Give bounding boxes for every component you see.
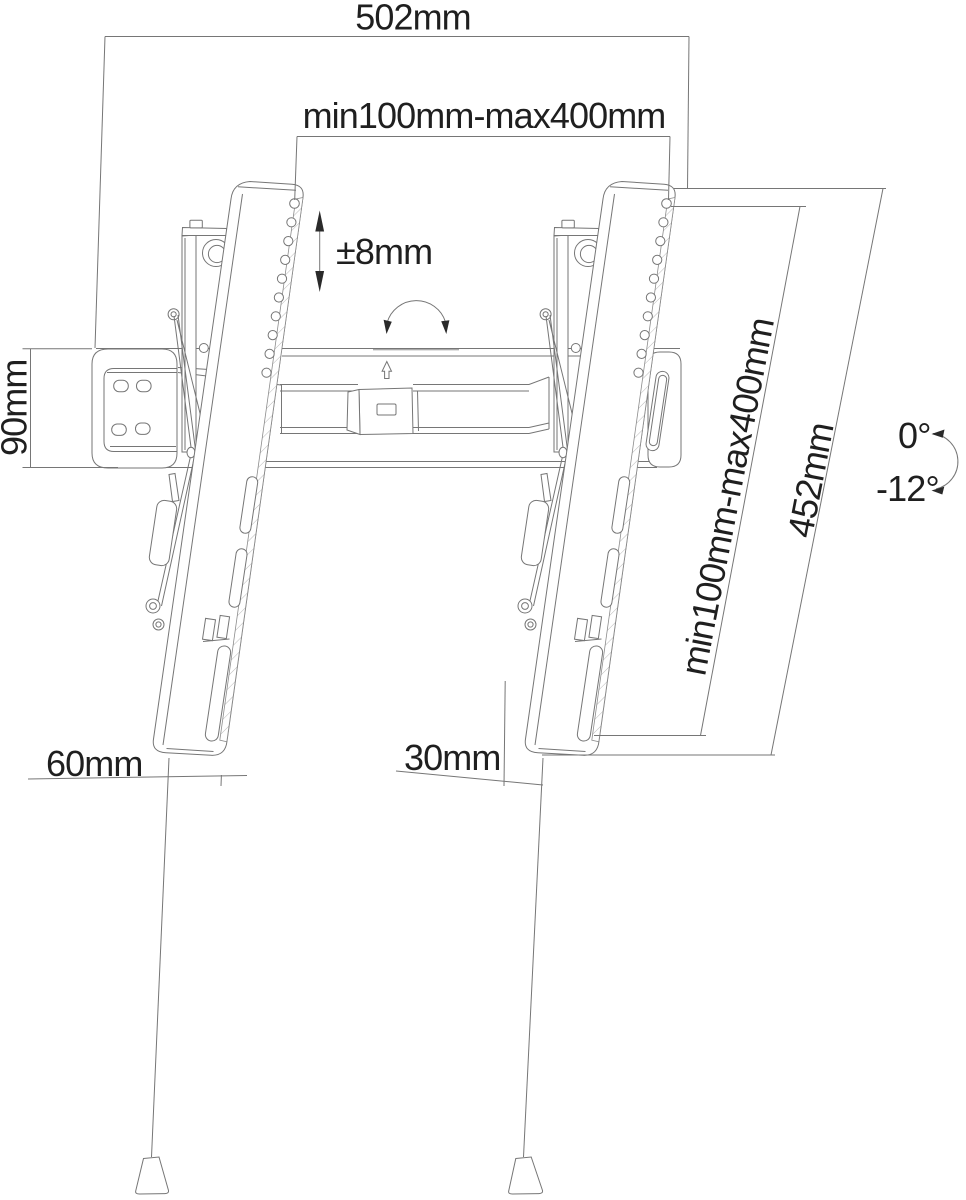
svg-text:±8mm: ±8mm [336,231,432,272]
svg-text:30mm: 30mm [404,737,500,778]
svg-text:min100mm-max400mm: min100mm-max400mm [303,95,666,136]
svg-text:502mm: 502mm [355,0,471,38]
svg-text:0°: 0° [898,415,931,456]
svg-text:-12°: -12° [876,468,939,509]
svg-text:90mm: 90mm [0,360,35,456]
